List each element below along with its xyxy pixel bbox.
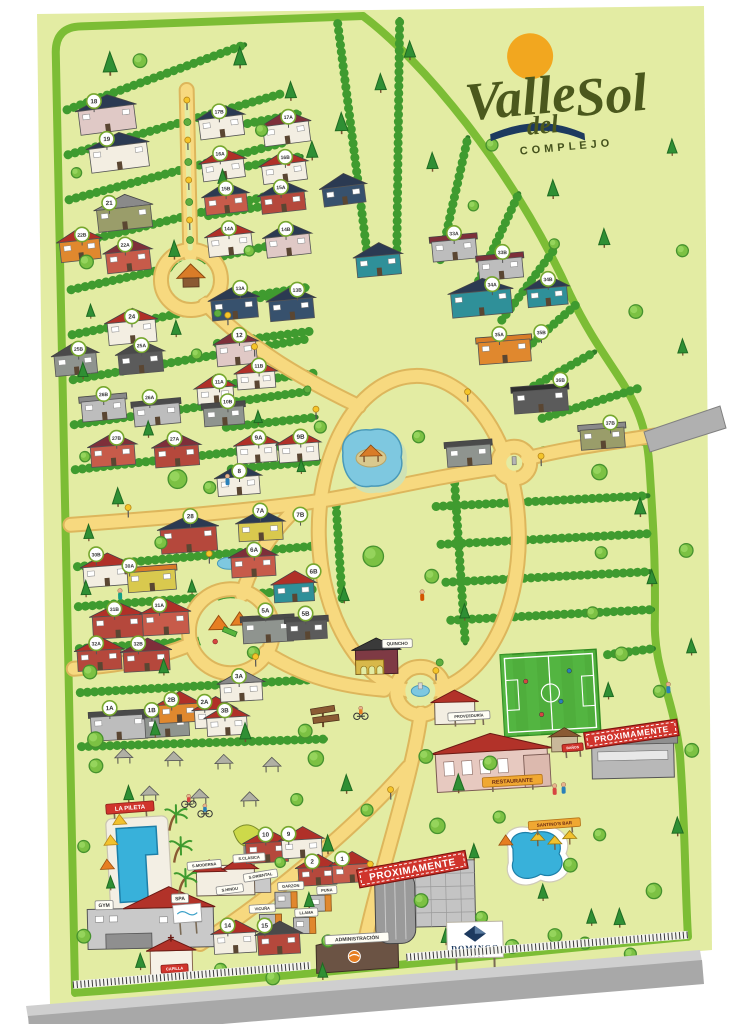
logo-word-sol: Sol — [572, 62, 649, 128]
window — [109, 653, 116, 658]
badge-number: 26B — [99, 392, 109, 398]
window — [209, 200, 217, 206]
badge-number: 25B — [74, 347, 84, 353]
window — [278, 896, 285, 901]
badge-number: 10 — [262, 832, 270, 839]
door — [224, 205, 230, 214]
window — [220, 348, 227, 354]
window — [510, 261, 517, 267]
door — [144, 663, 149, 671]
badge-number: 12 — [236, 332, 244, 339]
badge-number: 30A — [125, 564, 135, 570]
door — [305, 631, 310, 639]
street-lamp — [125, 504, 131, 510]
badge-number: 25A — [137, 343, 147, 349]
person-body — [553, 788, 557, 795]
window — [283, 448, 290, 454]
model-unit-door — [309, 917, 315, 933]
window — [163, 709, 170, 714]
street-lamp — [186, 177, 192, 183]
street-lamp — [185, 137, 191, 143]
window — [204, 530, 211, 536]
future-building-windows — [598, 750, 668, 761]
badge-number: 24 — [128, 313, 136, 320]
soccer-player — [567, 669, 572, 674]
window — [266, 169, 274, 175]
window — [241, 377, 248, 383]
window — [482, 346, 489, 352]
door — [286, 247, 292, 256]
door — [281, 204, 287, 213]
street-lamp — [206, 551, 212, 557]
window — [241, 449, 248, 455]
badge-number: 33B — [498, 250, 508, 256]
person-head — [561, 782, 565, 786]
window — [167, 407, 174, 413]
window — [239, 237, 247, 243]
badge-number: 34B — [543, 277, 553, 283]
window — [555, 392, 562, 398]
window — [101, 213, 109, 219]
window — [499, 293, 506, 299]
bush — [186, 198, 193, 205]
window — [244, 936, 251, 941]
window — [109, 916, 117, 922]
door — [377, 267, 383, 275]
window — [110, 257, 118, 263]
window — [444, 761, 455, 776]
badge-number: 11A — [215, 379, 224, 385]
badge-number: 17B — [215, 109, 225, 115]
house — [511, 383, 571, 414]
door — [150, 583, 156, 591]
window — [352, 189, 360, 195]
window — [297, 922, 304, 927]
window — [270, 241, 278, 247]
window — [273, 305, 280, 311]
map-sign: VICUÑA — [249, 904, 275, 913]
window — [85, 405, 92, 411]
badge-number: 1B — [148, 707, 157, 714]
door — [285, 135, 291, 144]
person-head — [118, 588, 122, 592]
gym-front — [106, 933, 152, 949]
badge-number: 33A — [449, 231, 459, 237]
badge-number: 7B — [296, 512, 305, 519]
window — [176, 616, 183, 621]
badge-number: 5B — [302, 611, 311, 618]
door — [350, 874, 355, 882]
badge-number: 32A — [92, 641, 102, 647]
window — [294, 166, 302, 172]
bush — [436, 659, 443, 666]
map-sign: QUINCHO — [382, 639, 412, 648]
window — [212, 240, 220, 246]
cyclist-body — [203, 807, 207, 812]
map-sign: SPA — [171, 894, 188, 903]
map-sign: LLAMA — [295, 908, 318, 917]
window — [518, 343, 525, 349]
door — [117, 161, 123, 170]
window — [270, 526, 277, 531]
window — [87, 571, 94, 577]
door — [122, 221, 128, 230]
badge-number: 15B — [221, 186, 231, 192]
badge-number: 26A — [145, 395, 155, 401]
window — [517, 395, 524, 401]
badge-number: 32B — [134, 641, 144, 647]
window — [127, 656, 134, 661]
badge-number: 6A — [250, 547, 259, 554]
window — [82, 114, 90, 120]
street-lamp — [388, 787, 394, 793]
map-sign: GYM — [95, 900, 113, 909]
window — [242, 527, 249, 532]
window — [93, 152, 101, 158]
window — [267, 129, 275, 135]
badge-number: 17A — [284, 115, 294, 121]
window — [150, 356, 157, 362]
door — [254, 380, 260, 388]
window — [235, 720, 242, 725]
window — [122, 449, 129, 455]
window — [263, 560, 270, 565]
window — [451, 451, 458, 457]
soccer-field — [500, 649, 601, 736]
window — [113, 402, 120, 408]
window — [163, 574, 170, 580]
person-body — [118, 593, 122, 600]
window — [250, 847, 257, 852]
street-lamp — [313, 406, 319, 412]
window — [247, 480, 254, 486]
sign-text: GYM — [98, 903, 110, 909]
person-body — [420, 594, 424, 601]
soccer-player — [559, 699, 564, 704]
badge-number: 14B — [281, 227, 291, 233]
quincho-arch — [361, 666, 367, 674]
window — [139, 209, 147, 215]
window — [159, 917, 167, 923]
door — [546, 298, 552, 306]
window — [315, 625, 322, 630]
house — [578, 422, 628, 451]
door — [164, 627, 169, 635]
window — [211, 722, 218, 727]
door — [255, 454, 261, 462]
door — [538, 404, 544, 412]
door — [139, 365, 145, 373]
badge-number: 5A — [261, 607, 270, 614]
model-unit-door — [291, 892, 297, 908]
street-lamp — [252, 654, 258, 660]
window — [482, 264, 489, 270]
window — [231, 119, 239, 125]
street-lamp — [251, 344, 257, 350]
window — [455, 297, 462, 303]
street-lamp — [187, 217, 193, 223]
person-body — [225, 478, 229, 485]
window — [159, 451, 166, 457]
door — [111, 458, 117, 466]
door — [265, 854, 270, 862]
window — [232, 410, 239, 416]
window — [464, 242, 471, 248]
window — [263, 376, 270, 382]
window — [95, 451, 102, 457]
sign-text: LLAMA — [299, 910, 313, 916]
window — [201, 392, 208, 398]
window — [122, 358, 129, 364]
window — [95, 916, 103, 922]
map-sign: PUNA — [317, 886, 337, 895]
badge-number: 15 — [261, 923, 269, 930]
badge-number: 35B — [537, 330, 547, 336]
window — [88, 243, 96, 249]
door — [292, 594, 297, 602]
sign-text: GARZON — [282, 883, 300, 889]
gazebo-body — [183, 278, 199, 287]
model-unit-door — [325, 895, 331, 911]
badge-number: 34A — [488, 282, 498, 288]
street-lamp — [225, 312, 231, 318]
person-head — [225, 474, 229, 478]
badge-number: 22A — [121, 243, 131, 249]
badge-number: 14 — [224, 922, 232, 929]
door — [502, 355, 508, 363]
sign-text: CAPILLA — [166, 965, 184, 971]
door — [222, 417, 228, 425]
soccer-player — [539, 712, 544, 717]
door — [259, 532, 264, 540]
badge-number: 21 — [106, 200, 114, 207]
badge-number: 10B — [223, 399, 233, 405]
badge-number: 3A — [235, 673, 244, 680]
window — [143, 324, 150, 330]
badge-number: 22B — [77, 233, 87, 239]
window — [278, 588, 285, 593]
window — [138, 410, 145, 416]
window — [301, 302, 308, 308]
valle-del-sol-complex-map: 18192122B22A2425B25A26B26A27B27A2830B30A… — [0, 0, 729, 1024]
door — [228, 247, 234, 256]
door — [452, 252, 458, 260]
street-lamp — [433, 667, 439, 673]
street-lamp — [465, 389, 471, 395]
badge-number: 16A — [215, 151, 225, 157]
window — [245, 301, 252, 307]
window — [262, 939, 269, 944]
badge-number: 1A — [106, 705, 115, 712]
map-sign: GARZON — [278, 881, 304, 890]
window — [244, 346, 251, 352]
window — [324, 870, 331, 875]
door — [235, 357, 241, 365]
window — [327, 192, 335, 198]
window — [84, 357, 91, 363]
billboard-post — [196, 922, 197, 934]
window — [360, 261, 367, 267]
window — [612, 431, 619, 437]
house — [444, 439, 494, 468]
roundabout-statue — [512, 457, 516, 465]
sign-text: QUINCHO — [387, 641, 409, 646]
window — [235, 561, 242, 566]
door — [237, 487, 243, 495]
window — [297, 126, 305, 132]
person-head — [420, 590, 424, 594]
badge-number: 19 — [103, 136, 111, 143]
badge-number: 7A — [256, 508, 265, 515]
window — [302, 587, 309, 592]
door — [233, 311, 239, 319]
badge-number: 36B — [556, 378, 566, 384]
door — [155, 417, 161, 425]
badge-number: 15A — [276, 185, 286, 191]
window — [247, 625, 254, 630]
bush — [304, 386, 311, 393]
door — [165, 728, 170, 736]
door — [102, 412, 108, 420]
window — [206, 167, 214, 173]
person-body — [666, 686, 670, 693]
door — [225, 727, 230, 735]
door — [316, 877, 321, 885]
person-body — [562, 787, 566, 794]
window — [58, 360, 65, 366]
window — [498, 758, 509, 773]
badge-number: 13B — [293, 288, 303, 294]
sign-text: PUNA — [321, 887, 333, 893]
window — [186, 449, 193, 455]
door — [127, 263, 133, 272]
sign-text: VICUÑA — [254, 906, 270, 912]
door — [300, 849, 305, 857]
window — [122, 109, 130, 115]
window — [462, 760, 473, 775]
fountain-pedestal — [418, 683, 422, 689]
window — [130, 619, 137, 624]
badge-number: 27A — [170, 437, 180, 443]
door — [277, 946, 282, 954]
badge-number: 2A — [201, 699, 210, 706]
quincho-arch — [369, 666, 375, 674]
bush — [185, 158, 192, 165]
door — [177, 714, 182, 722]
bush — [184, 118, 191, 125]
window — [265, 447, 272, 453]
window — [288, 937, 295, 942]
window — [96, 621, 103, 626]
window — [310, 843, 317, 848]
cyclist-body — [359, 709, 363, 714]
badge-number: 14A — [224, 226, 234, 232]
door — [186, 544, 192, 552]
window — [388, 258, 395, 264]
street-lamp — [184, 97, 190, 103]
window — [208, 412, 215, 418]
door — [290, 311, 296, 319]
window — [286, 844, 293, 849]
billboard-post — [180, 923, 181, 935]
door — [467, 458, 473, 466]
door — [251, 568, 256, 576]
door — [105, 578, 111, 586]
window — [436, 245, 443, 251]
door — [117, 732, 122, 740]
door — [601, 440, 607, 448]
window — [293, 196, 301, 202]
sign-text: SPA — [175, 896, 185, 902]
window — [112, 327, 119, 333]
door — [105, 124, 111, 133]
door — [239, 693, 244, 701]
door — [175, 458, 181, 466]
window — [215, 304, 222, 310]
playground-kid — [213, 639, 218, 644]
door — [115, 630, 120, 638]
window — [81, 655, 88, 660]
window — [479, 448, 486, 454]
street-lamp — [367, 861, 373, 867]
window — [297, 238, 305, 244]
badge-number: 6B — [310, 568, 319, 575]
badge-number: 3B — [221, 707, 230, 714]
door — [499, 271, 505, 279]
window — [232, 163, 240, 169]
window — [64, 246, 72, 252]
window — [203, 123, 211, 129]
person-head — [552, 784, 556, 788]
badge-number: 11B — [254, 364, 263, 370]
badge-number: 37B — [606, 421, 616, 427]
window — [131, 576, 138, 582]
window — [302, 872, 309, 877]
window — [250, 686, 257, 691]
page: 18192122B22A2425B25A26B26A27B27A2830B30A… — [0, 0, 729, 1024]
window — [95, 721, 102, 726]
badge-number: 16B — [281, 155, 291, 161]
door — [479, 307, 485, 315]
window — [135, 147, 143, 153]
cyclist-body — [187, 797, 191, 802]
window — [291, 626, 298, 631]
bush — [186, 236, 193, 243]
soccer-player — [523, 679, 528, 684]
window — [218, 938, 225, 943]
badge-number: 31B — [110, 607, 120, 613]
window — [138, 254, 146, 260]
window — [235, 197, 243, 203]
door — [97, 662, 102, 670]
badge-number: 28 — [187, 513, 195, 520]
window — [584, 434, 591, 440]
window — [307, 446, 314, 452]
window — [265, 199, 273, 205]
door — [220, 129, 226, 138]
street-lamp — [538, 453, 544, 459]
window — [224, 688, 231, 693]
logo-word-del: del — [525, 109, 560, 141]
badge-number: 35A — [495, 332, 505, 338]
logo-word-valle: Valle — [462, 62, 578, 132]
window — [135, 718, 142, 723]
badge-number: 2B — [167, 697, 176, 704]
window — [531, 293, 538, 299]
badge-number: 30B — [92, 552, 102, 558]
house — [131, 398, 183, 428]
door — [342, 196, 348, 205]
